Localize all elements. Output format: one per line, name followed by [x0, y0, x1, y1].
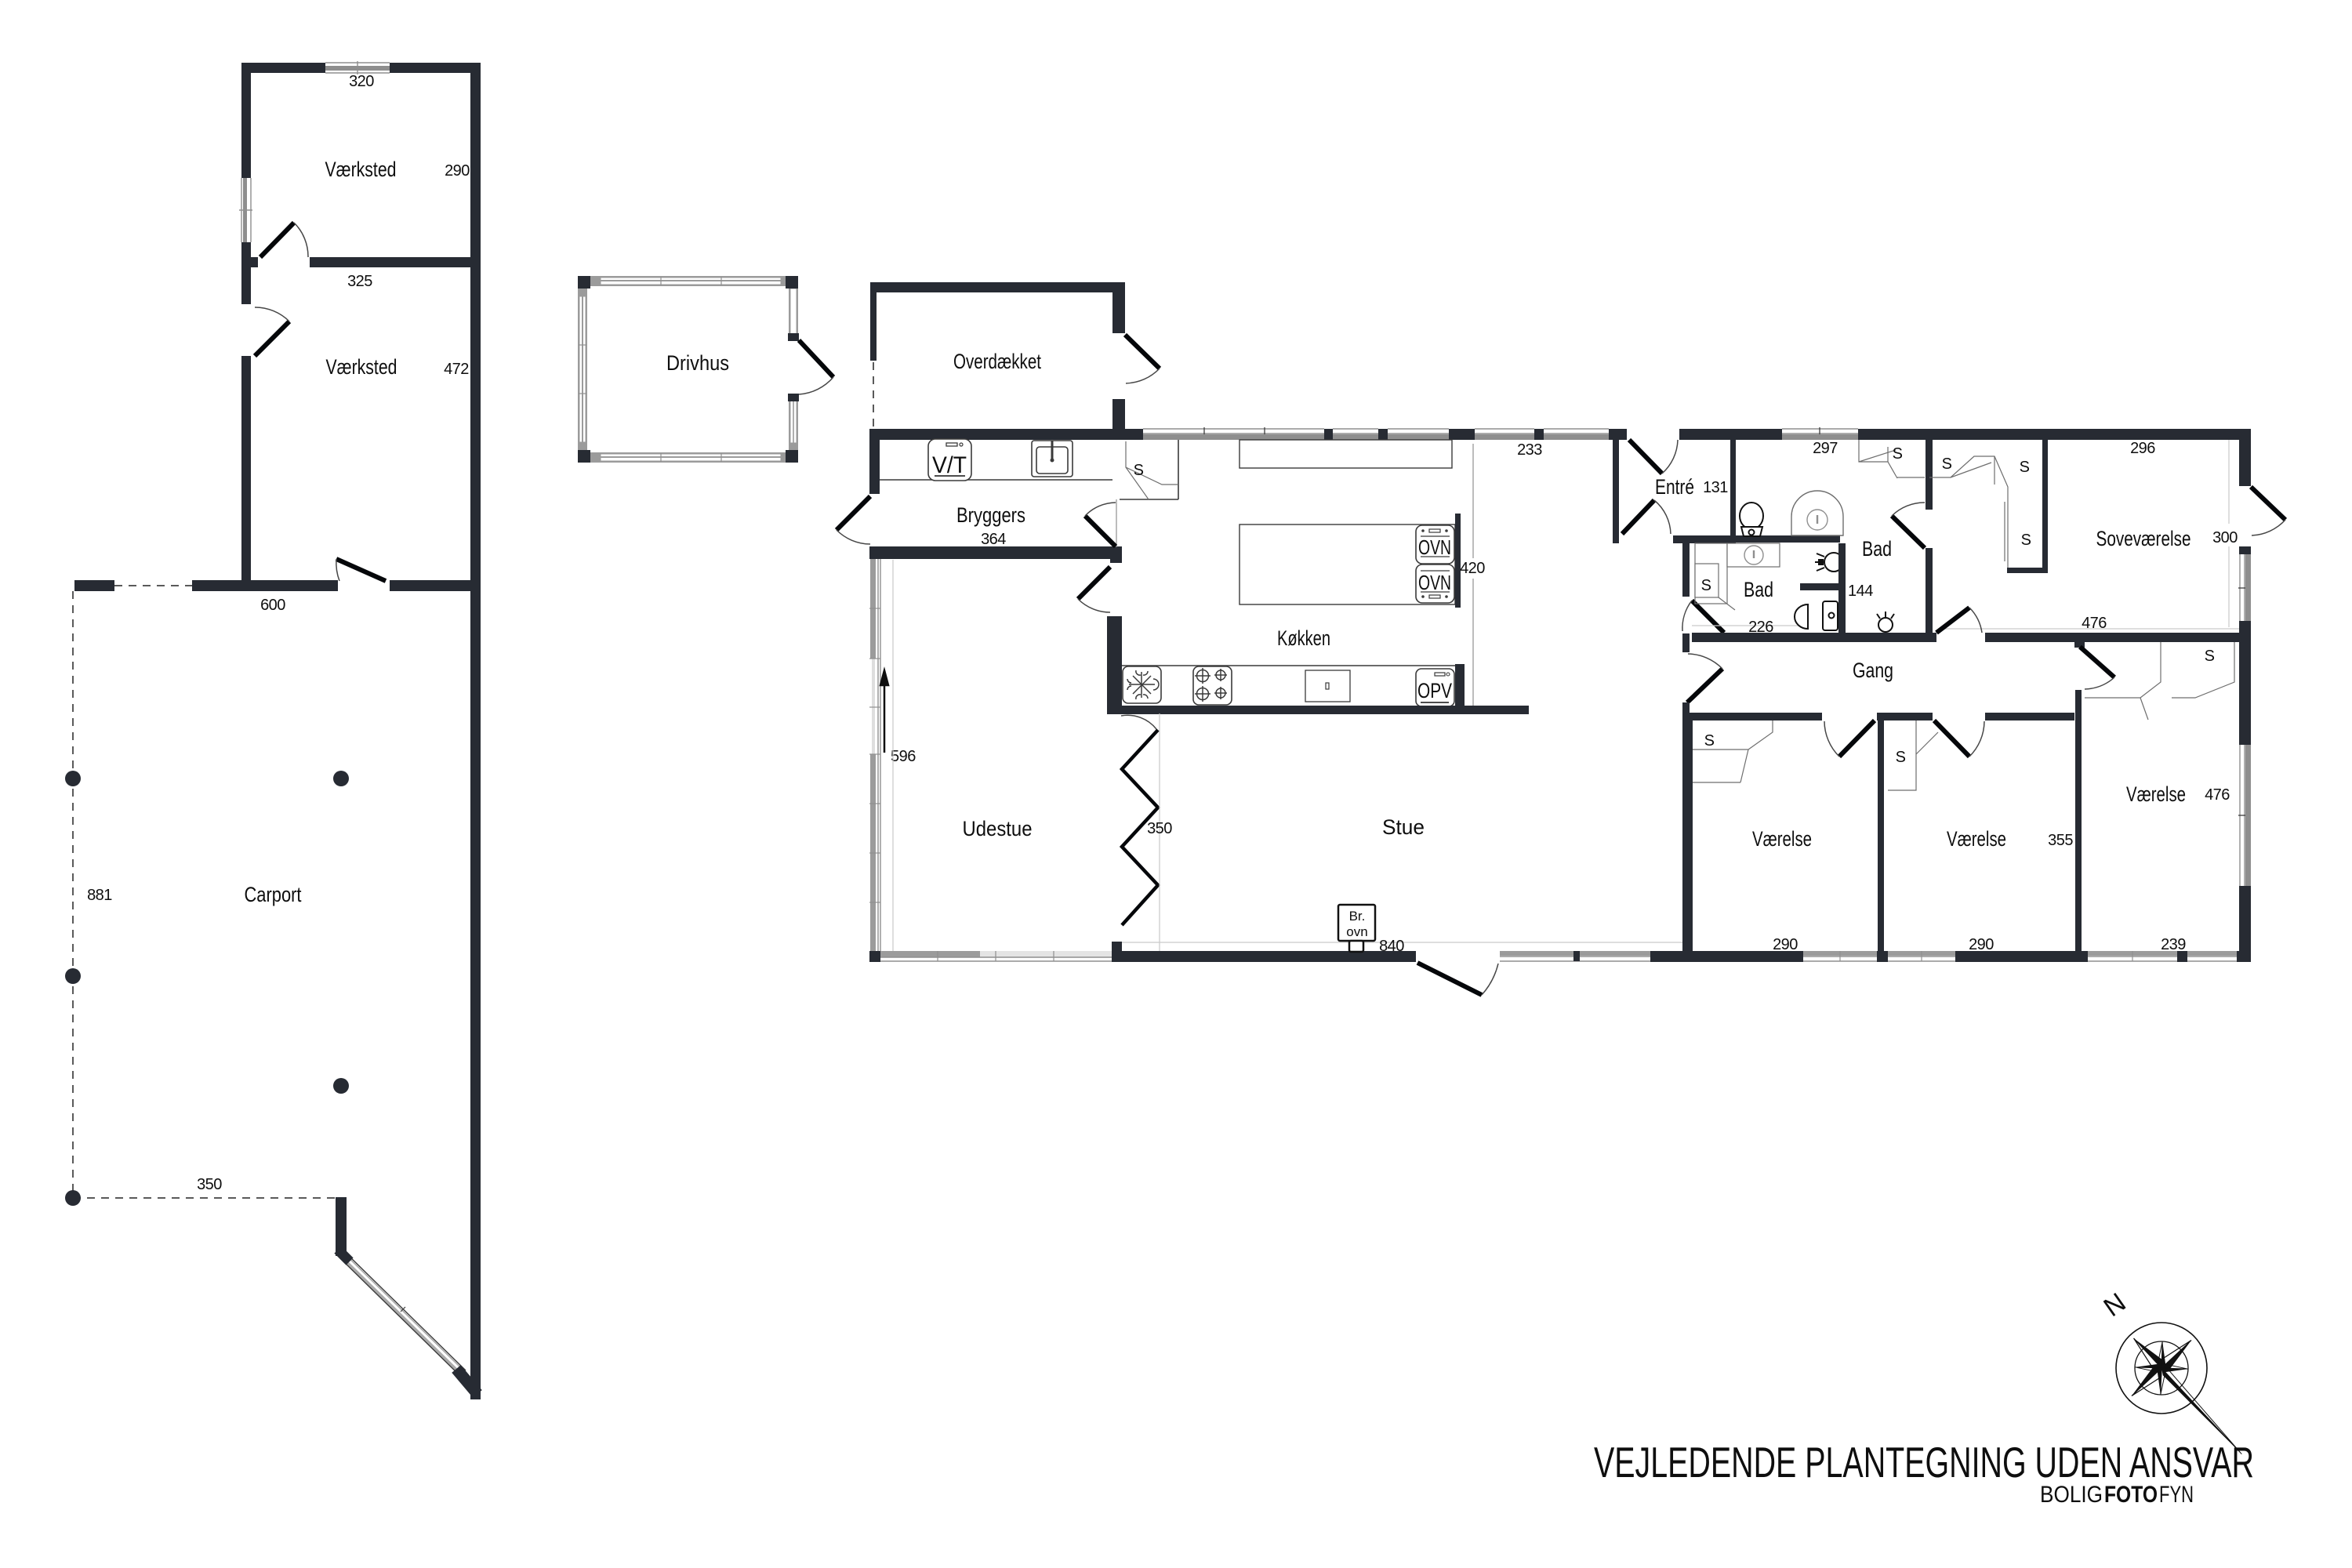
svg-text:Bad: Bad	[1744, 578, 1773, 601]
svg-text:881: 881	[87, 887, 112, 904]
svg-text:V/T: V/T	[932, 452, 967, 478]
svg-text:290: 290	[445, 162, 470, 180]
svg-text:S: S	[2020, 459, 2030, 476]
svg-text:Værksted: Værksted	[326, 355, 397, 379]
svg-text:476: 476	[2082, 615, 2107, 632]
svg-text:Drivhus: Drivhus	[666, 351, 729, 375]
svg-text:233: 233	[1517, 441, 1542, 459]
svg-text:S: S	[1896, 749, 1906, 766]
svg-text:ovn: ovn	[1346, 924, 1367, 939]
svg-text:FYN: FYN	[2159, 1482, 2194, 1508]
svg-text:Udestue: Udestue	[963, 817, 1033, 840]
svg-text:Værelse: Værelse	[1947, 827, 2006, 851]
svg-text:476: 476	[2205, 786, 2230, 804]
svg-text:355: 355	[2048, 832, 2073, 849]
svg-text:420: 420	[1460, 560, 1485, 577]
svg-text:144: 144	[1848, 583, 1873, 600]
svg-text:600: 600	[260, 597, 285, 614]
svg-text:S: S	[1893, 445, 1903, 463]
svg-text:Værelse: Værelse	[1752, 827, 1812, 851]
svg-text:S: S	[2205, 648, 2215, 665]
svg-text:Soveværelse: Soveværelse	[2096, 527, 2191, 550]
svg-text:297: 297	[1813, 440, 1838, 457]
svg-text:Bad: Bad	[1862, 537, 1892, 561]
svg-text:BOLIG: BOLIG	[2040, 1482, 2103, 1508]
svg-text:Værksted: Værksted	[325, 158, 397, 181]
svg-text:290: 290	[1773, 936, 1798, 953]
svg-text:Bryggers: Bryggers	[956, 503, 1025, 527]
svg-text:296: 296	[2130, 440, 2155, 457]
svg-text:131: 131	[1703, 479, 1728, 496]
svg-text:325: 325	[347, 273, 372, 290]
svg-text:S: S	[1701, 577, 1711, 594]
svg-text:Køkken: Køkken	[1277, 626, 1330, 650]
svg-text:OVN: OVN	[1418, 571, 1451, 594]
svg-text:FOTO: FOTO	[2104, 1482, 2158, 1508]
svg-text:472: 472	[444, 361, 469, 378]
svg-text:Stue: Stue	[1382, 815, 1425, 839]
svg-text:364: 364	[981, 531, 1006, 548]
svg-text:239: 239	[2161, 936, 2186, 953]
svg-text:OVN: OVN	[1418, 535, 1451, 559]
svg-text:VEJLEDENDE PLANTEGNING UDEN AN: VEJLEDENDE PLANTEGNING UDEN ANSVAR	[1594, 1438, 2254, 1486]
svg-text:S: S	[1134, 462, 1144, 479]
svg-text:Br.: Br.	[1349, 909, 1366, 924]
svg-text:Overdækket: Overdækket	[953, 350, 1041, 373]
svg-text:840: 840	[1379, 938, 1404, 955]
svg-text:Værelse: Værelse	[2126, 782, 2186, 806]
svg-text:350: 350	[1147, 820, 1172, 837]
svg-text:OPV: OPV	[1417, 679, 1452, 702]
svg-text:S: S	[2021, 532, 2031, 549]
svg-text:S: S	[1704, 732, 1715, 750]
svg-text:S: S	[1942, 456, 1952, 473]
svg-text:Carport: Carport	[245, 883, 302, 906]
svg-text:350: 350	[197, 1176, 222, 1193]
svg-text:290: 290	[1969, 936, 1994, 953]
svg-text:596: 596	[891, 748, 916, 765]
svg-text:Entré: Entré	[1655, 475, 1694, 499]
svg-text:320: 320	[349, 73, 374, 90]
svg-text:Gang: Gang	[1853, 659, 1893, 682]
svg-text:300: 300	[2212, 529, 2238, 546]
